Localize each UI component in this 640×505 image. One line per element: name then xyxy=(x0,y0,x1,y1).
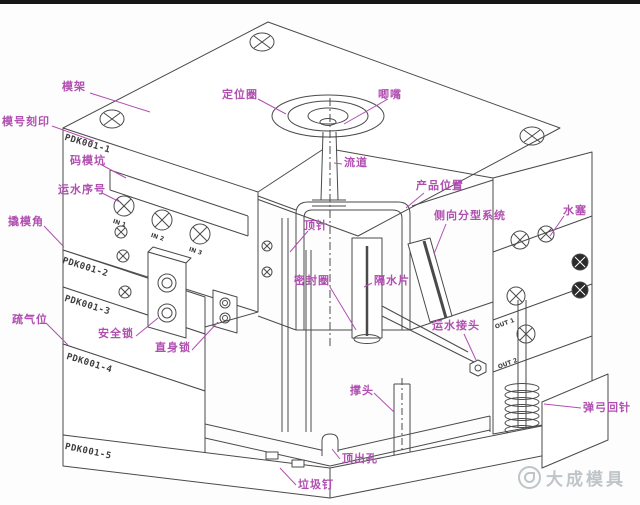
label-water-plug: 水塞 xyxy=(563,205,587,217)
lifter-drawing xyxy=(408,238,452,322)
label-side-parting-system: 侧向分型系统 xyxy=(434,210,506,222)
label-sprue-bushing: 唧嘴 xyxy=(378,89,402,101)
locating-ring-drawing xyxy=(272,95,384,137)
mold-line-art xyxy=(0,0,640,505)
label-water-connector: 运水接头 xyxy=(432,320,480,332)
label-ejector-pin: 顶针 xyxy=(304,220,328,232)
label-pry-corner: 撬模角 xyxy=(8,216,44,228)
watermark: 大成模具 xyxy=(518,465,626,490)
label-support-pillar: 撑头 xyxy=(350,385,374,397)
mold-structure-diagram: 模架 模号刻印 码模坑 运水序号 撬模角 疏气位 安全锁 直身锁 定位圈 唧嘴 … xyxy=(0,0,640,505)
label-seal-ring: 密封圈 xyxy=(294,275,330,287)
straight-lock-block xyxy=(213,290,237,333)
label-water-line-number: 运水序号 xyxy=(58,184,106,196)
label-runner: 流道 xyxy=(344,157,368,169)
watermark-text: 大成模具 xyxy=(546,465,626,490)
watermark-logo-icon xyxy=(518,466,541,489)
label-ejection-hole: 顶出孔 xyxy=(342,453,378,465)
label-vent-slot: 疏气位 xyxy=(12,314,48,326)
label-stop-pin: 垃圾钉 xyxy=(298,479,334,491)
label-spring-return-pin: 弹弓回针 xyxy=(583,402,631,414)
safety-lock-block xyxy=(148,247,191,338)
label-water-baffle: 隔水片 xyxy=(374,275,410,287)
label-locating-ring: 定位圈 xyxy=(222,89,258,101)
label-mold-number-engraving: 模号刻印 xyxy=(2,116,50,128)
label-safety-lock: 安全锁 xyxy=(98,328,134,340)
label-clamp-slot: 码模坑 xyxy=(70,155,106,167)
label-mold-base: 模架 xyxy=(62,81,86,93)
label-product-position: 产品位置 xyxy=(416,180,464,192)
label-straight-lock: 直身锁 xyxy=(155,342,191,354)
